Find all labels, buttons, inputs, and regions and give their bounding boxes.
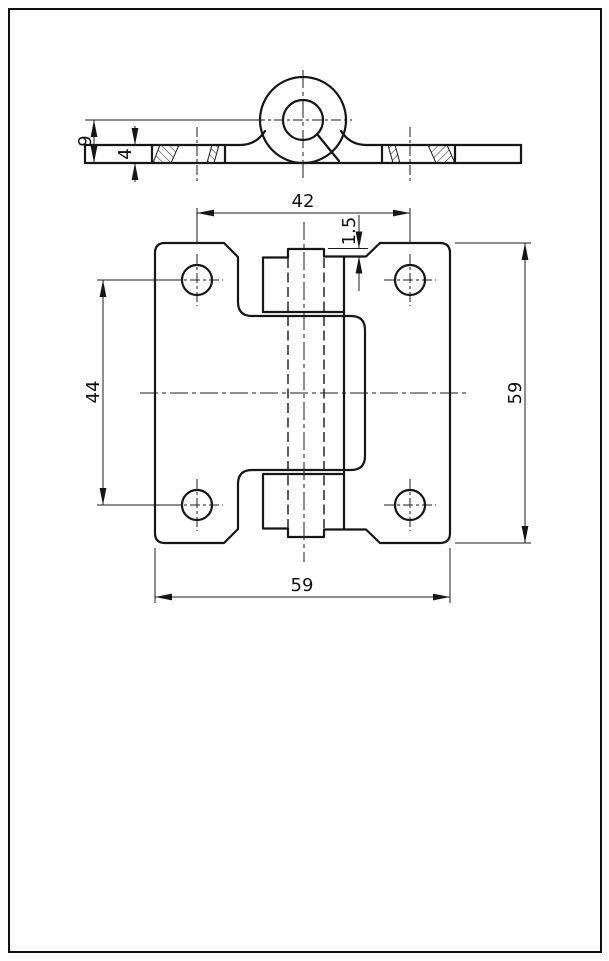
dim-9-label: 9 (75, 135, 96, 146)
dim-4-label: 4 (115, 148, 136, 159)
drawing-sheet: 9 4 (0, 0, 609, 961)
dim-44-label: 44 (83, 381, 104, 404)
dim-59-height-label: 59 (505, 382, 526, 405)
technical-drawing: 9 4 (0, 0, 609, 961)
dim-1-5-label: 1.5 (339, 217, 360, 246)
dim-42-label: 42 (292, 191, 315, 212)
dim-59-width-label: 59 (291, 575, 314, 596)
